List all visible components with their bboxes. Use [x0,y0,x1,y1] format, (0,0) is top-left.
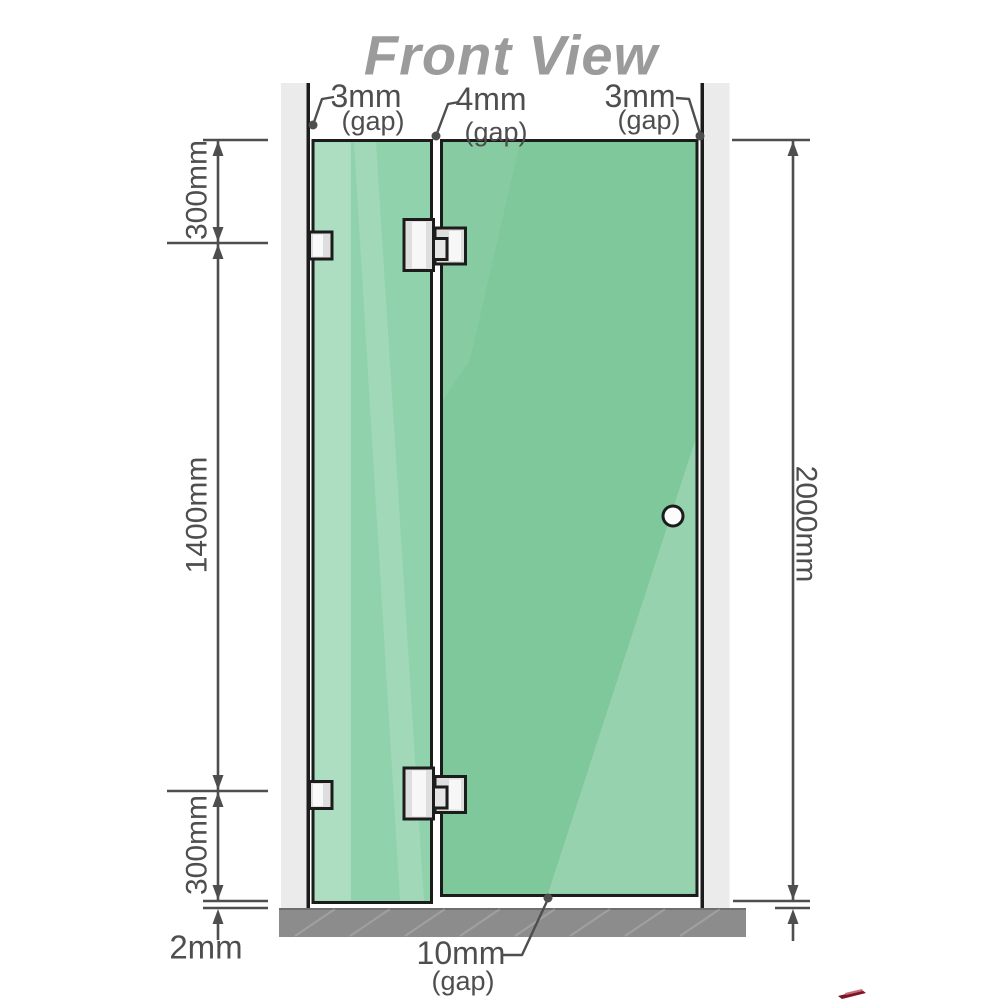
floor [279,908,746,937]
right-wall [704,83,730,910]
leader-dot [432,132,441,141]
door-handle [663,506,683,526]
leader-dot [309,121,318,130]
logo-fragment [838,989,866,999]
glass-panels [313,141,697,903]
wall-bracket-bottom [310,782,333,809]
hinge-top [404,220,466,271]
page-title: Front View [364,24,661,87]
dimension-left-column: 300mm 1400mm 300mm 2mm [167,140,268,966]
dim-label-floor-clearance: 2mm [169,929,242,966]
left-wall [281,83,307,910]
dim-label-total-height: 2000mm [790,466,823,583]
dimension-total-height: 2000mm [732,140,823,941]
gap-top-right-suffix: (gap) [617,105,680,135]
gap-bottom-suffix: (gap) [431,966,494,996]
gap-callout-top-left: 3mm (gap) [309,78,405,136]
gap-top-left-suffix: (gap) [341,106,404,136]
leader-dot [544,894,553,903]
hinge-bottom [404,768,466,819]
dim-label-top-section: 300mm [181,140,214,240]
gap-top-middle-suffix: (gap) [464,117,527,147]
shower-screen-front-view-svg: 300mm 1400mm 300mm 2mm 2000mm 3mm (gap) … [0,0,1000,1000]
gap-callout-top-right: 3mm (gap) [604,78,704,141]
right-wall-edge-line [701,83,705,910]
front-view-diagram-page: 300mm 1400mm 300mm 2mm 2000mm 3mm (gap) … [0,0,1000,1000]
dim-label-middle-section: 1400mm [181,457,214,574]
wall-bracket-top [310,232,333,259]
dim-label-bottom-section: 300mm [181,795,214,895]
gap-callout-top-middle: 4mm (gap) [432,81,528,147]
leader-dot [696,132,705,141]
floor-bar [279,908,746,937]
